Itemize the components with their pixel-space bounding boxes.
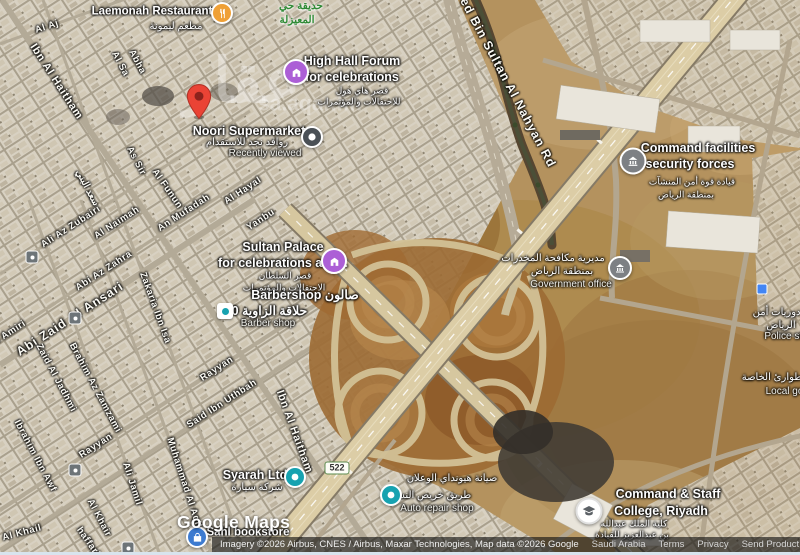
feedback-link[interactable]: Send Product Feedback (742, 539, 800, 550)
google-maps-logo[interactable]: Google Maps (177, 512, 290, 533)
poi-government-office-arabic1: مديرية مكافحة المخدرات (501, 254, 604, 264)
mosque-marker-icon[interactable] (69, 312, 82, 325)
poi-police-arabic1: ادارة دوريات أمن (753, 308, 800, 318)
poi-auto-repair-arabic1: صيانة هيونداي الوعلان (407, 474, 498, 484)
map-pin[interactable] (186, 84, 212, 125)
barbershop-icon[interactable] (217, 303, 233, 319)
terms-link[interactable]: Terms (659, 539, 685, 550)
poi-government-office-category: Government office (530, 280, 612, 290)
poi-noori-name[interactable]: Noori Supermarket (193, 125, 306, 138)
poi-command-facilities-arabic1: قيادة قوة أمن المنشآت (649, 178, 735, 187)
store-icon[interactable] (380, 484, 402, 506)
poi-syarah-name[interactable]: Syarah Ltd (223, 469, 288, 482)
poi-command-facilities-line1[interactable]: Command facilities (641, 142, 756, 155)
poi-special-emergency-category: Local gov (766, 387, 800, 397)
poi-high-hall-arabic2: للاحتفالات والمؤتمرات (318, 98, 401, 107)
store-icon[interactable] (284, 466, 306, 488)
region-link[interactable]: Saudi Arabia (592, 539, 646, 550)
poi-auto-repair-category: Auto repair shop (400, 504, 473, 514)
poi-high-hall-line1[interactable]: High Hall Forum (304, 55, 401, 68)
event-venue-icon[interactable] (283, 59, 309, 85)
poi-high-hall-arabic1: قصر هاي هول (336, 87, 389, 96)
poi-college-arabic1: كلية الملك عبدالله (601, 520, 668, 529)
park-label-line1: حديقة حي (279, 1, 323, 12)
poi-noori-status: Recently viewed (229, 149, 302, 159)
government-building-icon[interactable] (620, 148, 647, 175)
park-label-line2: المعيزلة (279, 15, 314, 26)
poi-police-arabic2: الرياض (766, 321, 795, 331)
event-venue-icon[interactable] (321, 248, 347, 274)
poi-command-facilities-arabic2: بمنطقة الرياض (658, 191, 714, 200)
mosque-marker-icon[interactable] (69, 464, 82, 477)
privacy-link[interactable]: Privacy (697, 539, 728, 550)
school-icon[interactable] (576, 498, 603, 525)
poi-barbershop-line2[interactable]: حلاقة الزاوية 90 (225, 305, 308, 318)
mosque-marker-icon[interactable] (26, 251, 39, 264)
satellite-terrain (0, 0, 800, 555)
poi-police-category: Police sta (764, 332, 800, 342)
poi-special-emergency-arabic: الطوارئ الخاصة (742, 373, 800, 383)
poi-college-line2[interactable]: College, Riyadh (614, 505, 708, 518)
poi-laemonah-name[interactable]: Laemonah Restaurant (92, 6, 213, 18)
recently-viewed-icon[interactable] (301, 126, 323, 148)
poi-command-facilities-line2[interactable]: security forces (646, 158, 735, 171)
poi-sultan-palace-arabic1: قصر السلطان (259, 272, 312, 281)
poi-government-office-arabic2: بمنطقة الرياض (531, 267, 593, 277)
poi-noori-arabic: روافد نجد للاستقدام (206, 138, 288, 148)
route-shield-522: 522 (324, 462, 349, 475)
poi-sultan-palace-line1[interactable]: Sultan Palace (242, 241, 323, 254)
satellite-map-viewport[interactable]: عقار sa.aqar.fm Al Aj Ibn Al Haitham Al … (0, 0, 800, 555)
poi-syarah-arabic: شركة سيارة (231, 483, 282, 493)
poi-college-line1[interactable]: Command & Staff (616, 488, 721, 501)
poi-high-hall-line2[interactable]: for celebrations (305, 71, 399, 84)
small-blue-poi-icon[interactable] (757, 284, 768, 295)
restaurant-icon[interactable] (211, 2, 233, 24)
poi-laemonah-arabic: مطعم ليمونة (150, 22, 203, 32)
poi-barbershop-category: Barber shop (241, 319, 295, 329)
poi-barbershop-line1[interactable]: Barbershop صالون (251, 289, 359, 302)
attribution-bar: Imagery ©2026 Airbus, CNES / Airbus, Max… (212, 537, 800, 552)
imagery-credits: Imagery ©2026 Airbus, CNES / Airbus, Max… (220, 539, 579, 550)
government-building-icon[interactable] (608, 256, 632, 280)
